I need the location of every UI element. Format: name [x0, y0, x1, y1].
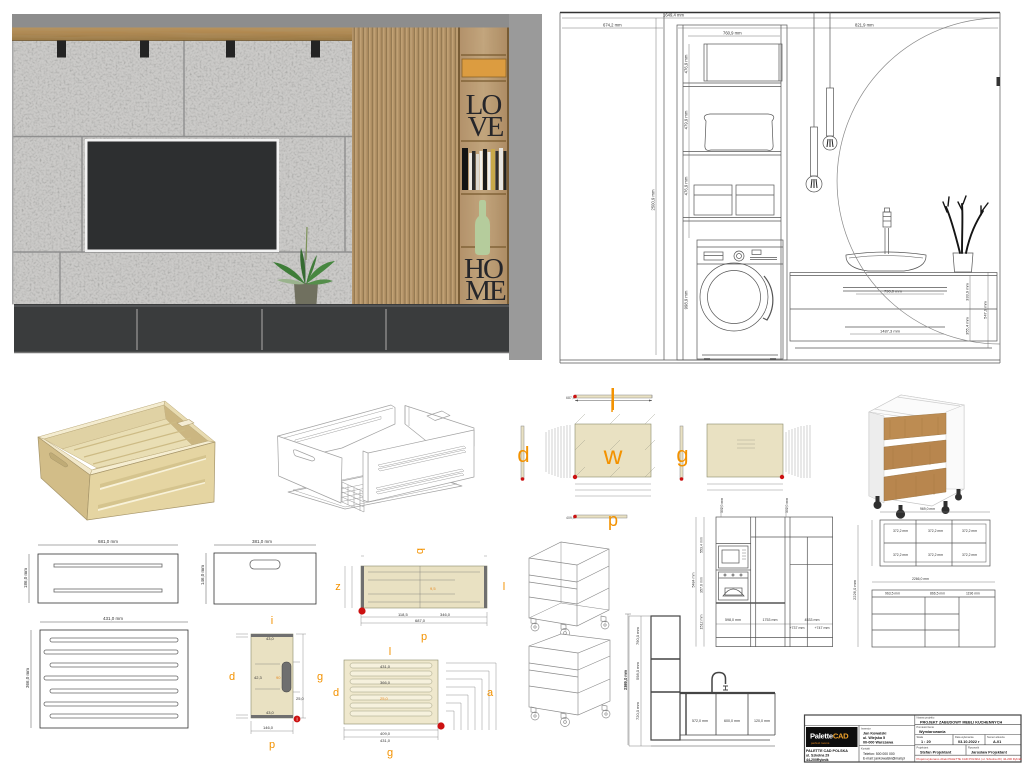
svg-text:476,9 mm: 476,9 mm: [684, 54, 689, 73]
svg-text:p: p: [269, 739, 275, 751]
svg-text:302,0 mm: 302,0 mm: [720, 498, 724, 513]
svg-text:302,0 mm: 302,0 mm: [785, 498, 789, 513]
svg-text:687,0: 687,0: [415, 618, 426, 623]
svg-text:146,0: 146,0: [263, 725, 274, 730]
svg-text:431,0 mm: 431,0 mm: [103, 616, 123, 621]
svg-text:Wymiarowania: Wymiarowania: [919, 730, 946, 734]
svg-text:b: b: [414, 548, 426, 554]
svg-text:372,2 mm: 372,2 mm: [893, 553, 908, 557]
svg-text:9,5: 9,5: [430, 586, 436, 591]
svg-text:Rysownik: Rysownik: [968, 745, 980, 749]
svg-text:118,5: 118,5: [398, 612, 408, 617]
svg-text:186,0 mm: 186,0 mm: [23, 568, 28, 588]
svg-text:553,4 mm: 553,4 mm: [700, 537, 704, 553]
svg-text:p: p: [421, 631, 427, 643]
svg-text:790,0 mm: 790,0 mm: [635, 627, 640, 645]
svg-text:372,2 mm: 372,2 mm: [928, 529, 943, 533]
svg-text:Projektant: Projektant: [917, 745, 929, 749]
svg-text:43,0: 43,0: [266, 710, 275, 715]
svg-text:998,9 mm: 998,9 mm: [684, 290, 689, 309]
svg-text:00-000 Warszawa: 00-000 Warszawa: [863, 741, 894, 745]
svg-text:A-01: A-01: [993, 740, 1001, 744]
svg-text:1196 mm: 1196 mm: [966, 592, 980, 596]
svg-text:Numer arkusza: Numer arkusza: [987, 735, 1005, 739]
svg-text:Jan Kowalski: Jan Kowalski: [863, 732, 886, 736]
svg-text:w: w: [603, 440, 623, 470]
svg-text:333,9 mm: 333,9 mm: [965, 282, 970, 300]
svg-text:821,9 mm: 821,9 mm: [855, 23, 874, 28]
svg-text:681,0 mm: 681,0 mm: [98, 539, 118, 544]
svg-text:Projekt wykonano dzieki PALETT: Projekt wykonano dzieki PALETTE CAD POLS…: [917, 757, 1023, 761]
svg-text:1 : 20: 1 : 20: [921, 740, 931, 744]
svg-text:03.10.2022 r: 03.10.2022 r: [958, 740, 980, 744]
svg-text:Pomieszczenie: Pomieszczenie: [917, 725, 935, 729]
svg-text:346,0: 346,0: [440, 612, 451, 617]
svg-text:44-200Rybnik: 44-200Rybnik: [806, 758, 829, 762]
svg-text:1512 mm: 1512 mm: [700, 615, 704, 630]
svg-text:674,2 mm: 674,2 mm: [603, 23, 622, 28]
svg-text:572,0 mm: 572,0 mm: [692, 719, 708, 723]
svg-text:a: a: [487, 687, 494, 699]
svg-text:Telefon: 500 000 000: Telefon: 500 000 000: [863, 752, 895, 756]
svg-text:l: l: [389, 646, 391, 658]
svg-text:l: l: [503, 581, 505, 593]
svg-text:ul. Szkolna 29: ul. Szkolna 29: [806, 754, 829, 758]
svg-text:476,9 mm: 476,9 mm: [684, 176, 689, 195]
svg-text:43,0: 43,0: [266, 636, 275, 641]
svg-text:Stefan Projektant: Stefan Projektant: [920, 750, 952, 754]
svg-text:25,0: 25,0: [296, 696, 305, 701]
svg-text:d: d: [333, 687, 339, 699]
svg-text:598,0 mm: 598,0 mm: [635, 662, 640, 680]
svg-text:790,0 mm: 790,0 mm: [884, 289, 902, 294]
svg-text:372,2 mm: 372,2 mm: [962, 529, 977, 533]
svg-text:i: i: [271, 615, 273, 627]
svg-text:ME: ME: [465, 275, 506, 307]
svg-text:g: g: [387, 747, 393, 759]
svg-text:g: g: [676, 442, 688, 467]
svg-text:42,3: 42,3: [254, 675, 263, 680]
svg-text:372,2 mm: 372,2 mm: [962, 553, 977, 557]
svg-text:963,5 mm: 963,5 mm: [885, 592, 900, 596]
svg-text:355,4 mm: 355,4 mm: [965, 316, 970, 334]
svg-text:372,2 mm: 372,2 mm: [928, 553, 943, 557]
svg-text:357,6 mm: 357,6 mm: [700, 577, 704, 593]
svg-text:p: p: [608, 510, 618, 530]
svg-text:866,5 mm: 866,5 mm: [930, 592, 945, 596]
svg-text:i: i: [296, 717, 297, 723]
svg-text:372,2 mm: 372,2 mm: [893, 529, 908, 533]
svg-text:ul. Wiejska 5: ul. Wiejska 5: [863, 736, 885, 740]
svg-text:2500,9 mm: 2500,9 mm: [651, 189, 656, 210]
svg-text:366,0: 366,0: [380, 680, 391, 685]
svg-text:2266,0 mm: 2266,0 mm: [912, 577, 929, 581]
svg-text:z: z: [335, 581, 341, 593]
svg-text:d: d: [229, 671, 235, 683]
svg-text:PALETTE CAD POLSKA: PALETTE CAD POLSKA: [806, 749, 848, 753]
svg-text:431,0: 431,0: [380, 738, 391, 743]
svg-text:Data wykonania: Data wykonania: [955, 735, 974, 739]
svg-text:25,0: 25,0: [380, 696, 389, 701]
svg-text:E-mail: jankowalski@mail.pl: E-mail: jankowalski@mail.pl: [863, 757, 905, 761]
svg-text:479,9 mm: 479,9 mm: [684, 110, 689, 129]
svg-text:d: d: [517, 442, 529, 467]
svg-text:1487,3 mm: 1487,3 mm: [880, 329, 901, 334]
svg-text:2226,0 mm: 2226,0 mm: [852, 579, 857, 600]
svg-text:g: g: [317, 671, 323, 683]
svg-text:146,0 mm: 146,0 mm: [200, 565, 205, 585]
svg-text:4533 mm: 4533 mm: [805, 618, 820, 622]
svg-text:90: 90: [276, 675, 281, 680]
svg-text:Jaroslaw Projektant: Jaroslaw Projektant: [971, 750, 1008, 754]
svg-text:366,0 mm: 366,0 mm: [25, 668, 30, 688]
svg-text:1753 mm: 1753 mm: [763, 618, 778, 622]
svg-text:547,9 mm: 547,9 mm: [983, 300, 988, 318]
svg-text:PROJEKT ZABUDOWY MEBLI KUCHENN: PROJEKT ZABUDOWY MEBLI KUCHENNYCH: [920, 720, 1002, 724]
svg-text:969,0 mm: 969,0 mm: [920, 507, 935, 511]
svg-text:760,9 mm: 760,9 mm: [723, 31, 742, 36]
svg-text:598,0 mm: 598,0 mm: [725, 618, 741, 622]
svg-text:381,0 mm: 381,0 mm: [252, 539, 272, 544]
svg-text:Inwestor: Inwestor: [861, 727, 871, 731]
svg-text:720,0 mm: 720,0 mm: [635, 702, 640, 720]
svg-text:perfect rooms: perfect rooms: [811, 741, 830, 745]
svg-text:409,0: 409,0: [380, 731, 391, 736]
svg-text:+747 mm: +747 mm: [814, 626, 829, 630]
svg-text:2389,0 mm: 2389,0 mm: [623, 669, 628, 690]
svg-text:431,0: 431,0: [380, 664, 391, 669]
svg-text:VE: VE: [468, 111, 504, 143]
svg-text:Skala: Skala: [917, 735, 924, 739]
svg-text:+737 mm: +737 mm: [789, 626, 804, 630]
svg-text:600,0 mm: 600,0 mm: [724, 719, 740, 723]
svg-text:Nazwa projektu: Nazwa projektu: [917, 716, 935, 720]
svg-text:120,0 mm: 120,0 mm: [754, 719, 770, 723]
svg-text:PaletteCAD: PaletteCAD: [810, 732, 849, 741]
svg-text:1649,4 mm: 1649,4 mm: [663, 13, 684, 18]
svg-text:Kontakt: Kontakt: [861, 747, 870, 751]
svg-text:5484 mm: 5484 mm: [692, 573, 696, 588]
